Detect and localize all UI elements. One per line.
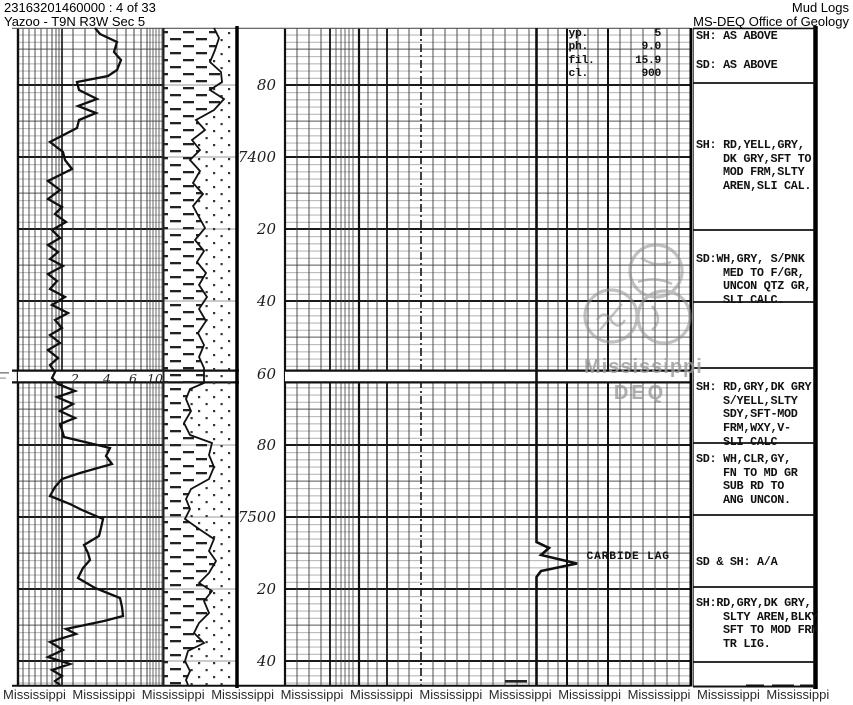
description-line: SDY,SFT-MOD bbox=[696, 408, 845, 422]
depth-label: 7500 bbox=[214, 508, 276, 526]
rate-scale-value: 10 bbox=[145, 371, 165, 386]
description-line: SH: RD,YELL,GRY, bbox=[696, 139, 818, 153]
mud-param-label: yp. bbox=[569, 28, 588, 41]
description-line: SLI CALC bbox=[696, 436, 845, 450]
description-line: SH: RD,GRY,DK GRY bbox=[696, 381, 818, 395]
mud-param-label: cl. bbox=[569, 68, 588, 81]
depth-label: 80 bbox=[214, 76, 276, 94]
depth-label: 7400 bbox=[214, 148, 276, 166]
description-line: SD: AS ABOVE bbox=[696, 59, 818, 73]
well-location: Yazoo - T9N R3W Sec 5 bbox=[4, 15, 145, 30]
description-line: ANG UNCON. bbox=[696, 494, 845, 508]
mud-param-label: fil. bbox=[569, 55, 595, 68]
footer-watermark-word: Mississippi bbox=[558, 687, 621, 702]
depth-label: 80 bbox=[214, 436, 276, 454]
depth-label: 40 bbox=[214, 292, 276, 310]
description-line: SD & SH: A/A bbox=[696, 556, 818, 570]
description-line: SLI CALC. bbox=[696, 294, 845, 308]
description-line: SFT TO MOD FRM bbox=[696, 624, 845, 638]
footer-watermark-word: Mississippi bbox=[142, 687, 205, 702]
footer-watermark-word: Mississippi bbox=[628, 687, 691, 702]
depth-label: 20 bbox=[214, 580, 276, 598]
carbide-lag-annotation: CARBIDE LAG bbox=[587, 551, 670, 564]
footer-watermark-word: Mississippi bbox=[3, 687, 66, 702]
mud-param-value: 15.9 bbox=[600, 55, 661, 68]
footer-watermark-word: Mississippi bbox=[489, 687, 552, 702]
mud-param-value: 900 bbox=[600, 68, 661, 81]
description-line: S/YELL,SLTY bbox=[696, 395, 845, 409]
description-line: TR LIG. bbox=[696, 638, 845, 652]
description-line: SH: AS ABOVE bbox=[696, 30, 818, 44]
rate-scale-value: 6 bbox=[123, 371, 143, 386]
rate-scale-value: 2 bbox=[65, 371, 85, 386]
description-line: SLTY AREN,BLKY bbox=[696, 611, 845, 625]
description-line: SD:WH,GRY, S/PNK bbox=[696, 253, 818, 267]
description-line: MED TO F/GR, bbox=[696, 267, 845, 281]
description-line: SD: WH,CLR,GY, bbox=[696, 453, 818, 467]
mud-param-value: 5 bbox=[600, 28, 661, 41]
description-line: AREN,SLI CAL. bbox=[696, 180, 845, 194]
mud-param-label: ph. bbox=[569, 41, 588, 54]
mud-log-page: 23163201460000 : 4 of 33 Yazoo - T9N R3W… bbox=[0, 0, 853, 705]
footer-watermark-word: Mississippi bbox=[72, 687, 135, 702]
rate-scale-value: 4 bbox=[97, 371, 117, 386]
footer-watermark-word: Mississippi bbox=[697, 687, 760, 702]
agency-name: MS-DEQ Office of Geology bbox=[693, 15, 849, 30]
depth-label: 20 bbox=[214, 220, 276, 238]
watermark-deq: DEQ bbox=[584, 382, 696, 404]
depth-label: 40 bbox=[214, 652, 276, 670]
description-line: SUB RD TO bbox=[696, 480, 845, 494]
footer-watermark-word: Mississippi bbox=[211, 687, 274, 702]
description-line: MOD FRM,SLTY bbox=[696, 166, 845, 180]
mud-param-value: 9.0 bbox=[600, 41, 661, 54]
description-line: FN TO MD GR bbox=[696, 467, 845, 481]
footer-watermark-word: Mississippi bbox=[281, 687, 344, 702]
footer-watermark-word: Mississippi bbox=[350, 687, 413, 702]
description-line: FRM,WXY,V- bbox=[696, 422, 845, 436]
footer-watermark-word: Mississippi bbox=[766, 687, 829, 702]
footer-watermark-word: Mississippi bbox=[419, 687, 482, 702]
description-line: UNCON QTZ GR, bbox=[696, 280, 845, 294]
depth-label: 60 bbox=[214, 365, 276, 383]
description-line: SH:RD,GRY,DK GRY, bbox=[696, 597, 818, 611]
description-line: DK GRY,SFT TO bbox=[696, 153, 845, 167]
watermark-state-name: Mississippi bbox=[584, 356, 696, 378]
